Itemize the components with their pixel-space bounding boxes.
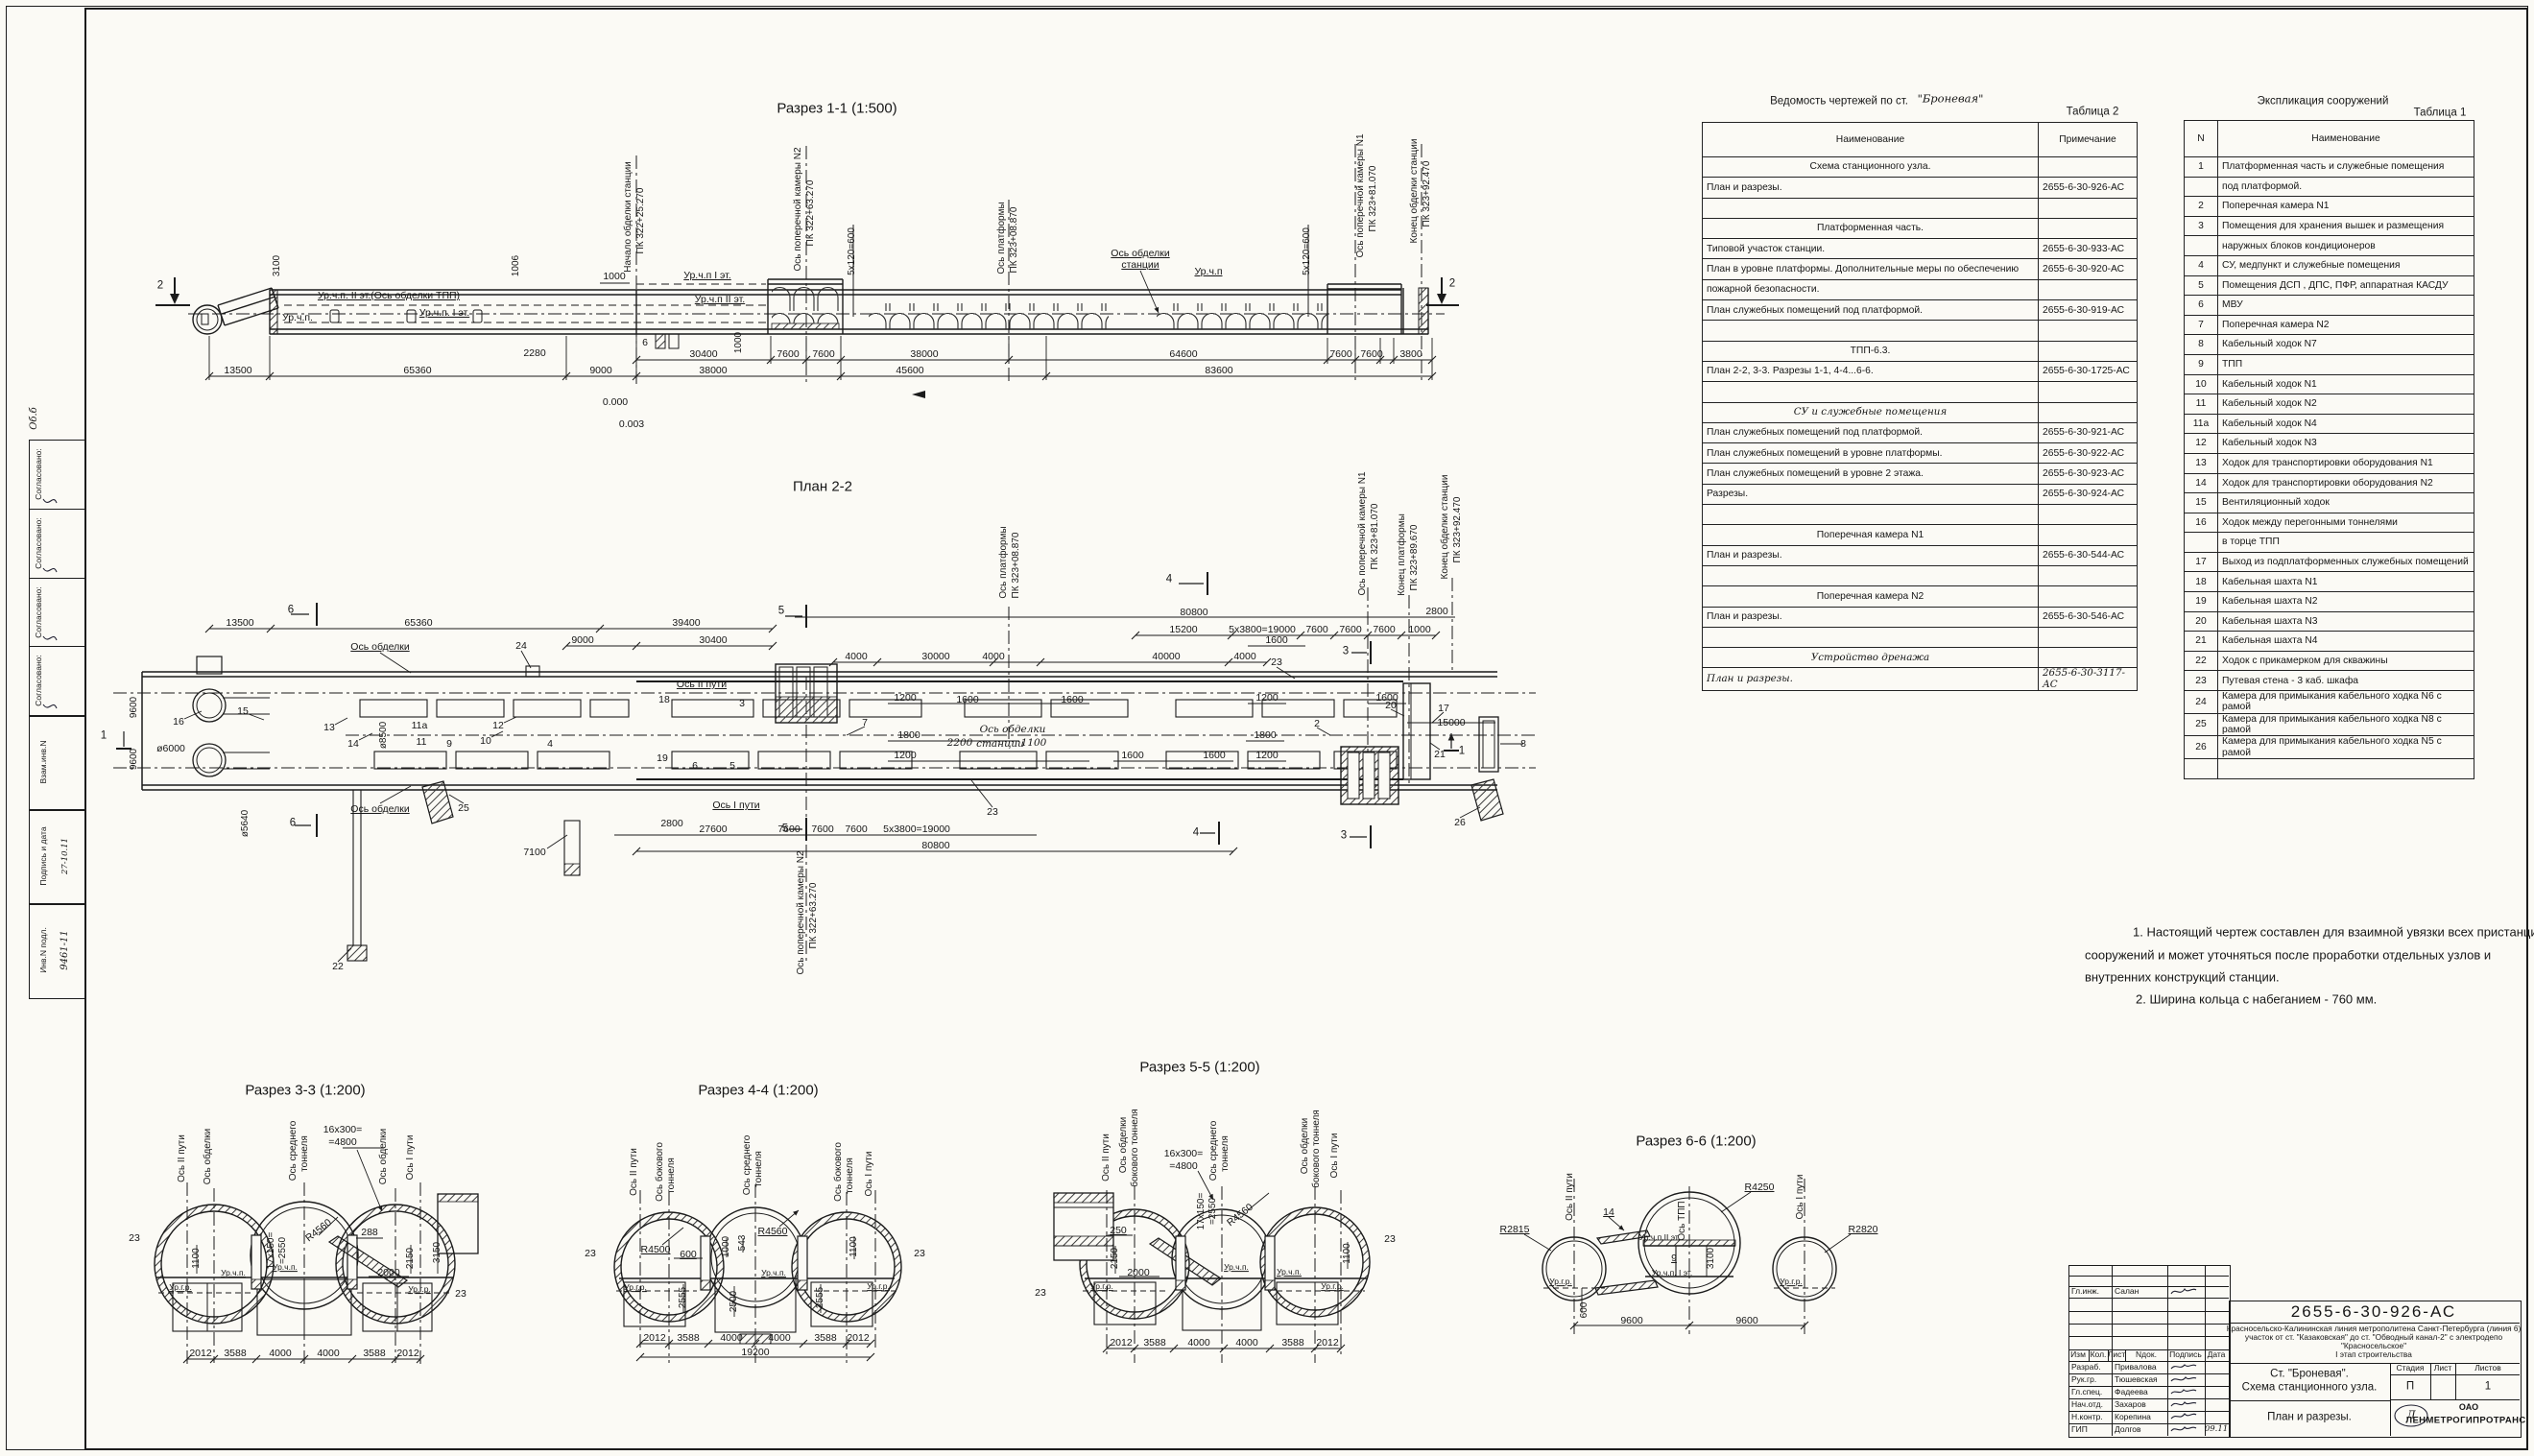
dim-label: 1800 — [1254, 729, 1276, 741]
sheet-name-cell — [1703, 198, 2039, 218]
dim-label: 2500 — [729, 1291, 739, 1312]
table-row — [1703, 382, 2138, 402]
axis-label: тоннеля — [754, 1151, 764, 1187]
callout-number: 8 — [1520, 738, 1526, 750]
header-col: Nдок. — [2136, 1350, 2157, 1360]
dim-label-handwritten: 1100 — [1021, 737, 1047, 749]
sheet-name-cell: ТПП-6.3. — [1703, 341, 2039, 361]
dim-label: 15000 — [1437, 717, 1465, 728]
dim-label: =4800 — [1169, 1160, 1198, 1172]
cut-marker: 6 — [288, 604, 294, 616]
table-row: 11а Кабельный ходок N4 — [2185, 414, 2474, 434]
signer-role: Н.контр. — [2071, 1413, 2103, 1422]
callout-number: 12 — [492, 720, 504, 731]
table-row: пожарной безопасности. — [1703, 279, 2138, 299]
sheet-note-cell — [2039, 382, 2138, 402]
table-title: Экспликация сооружений — [2258, 95, 2389, 107]
structure-number-cell: 20 — [2185, 611, 2218, 632]
column-header: Примечание — [2039, 123, 2138, 157]
dim-label: 4000 — [1235, 1337, 1257, 1349]
signer-role: Разраб. — [2071, 1363, 2101, 1372]
dim-label: 4000 — [317, 1348, 339, 1359]
structure-number-cell: 17 — [2185, 552, 2218, 572]
level-label: Ур.ч.п. — [1277, 1268, 1302, 1277]
structure-name-cell: Кабельный ходок N1 — [2218, 374, 2474, 394]
callout-number: 14 — [347, 738, 359, 750]
section-title: Разрез 4-4 (1:200) — [698, 1082, 818, 1098]
axis-label: Ось обделки — [379, 1129, 389, 1184]
note-line: внутренних конструкций станции. — [2085, 971, 2280, 986]
level-label: Ур.ч.п. — [273, 1263, 298, 1273]
structure-number-cell: 12 — [2185, 434, 2218, 454]
structure-number-cell: 16 — [2185, 513, 2218, 533]
axis-label: Ось I пути — [406, 1135, 416, 1181]
callout-number: 18 — [658, 694, 670, 705]
dim-label: 5х120=600 — [1303, 227, 1312, 275]
callout-number: 23 — [129, 1232, 140, 1244]
structure-number-cell: 7 — [2185, 315, 2218, 335]
structure-name-cell: Кабельная шахта N2 — [2218, 592, 2474, 612]
dim-label: 65360 — [403, 365, 431, 376]
dim-label: 2150 — [406, 1248, 416, 1269]
structure-number-cell: 10 — [2185, 374, 2218, 394]
table-row: План и разрезы. 2655-6-30-546-АС — [1703, 607, 2138, 627]
callout-number: 15 — [237, 705, 249, 717]
object-name: Схема станционного узла. — [2242, 1381, 2378, 1394]
table-row: План 2-2, 3-3. Разрезы 1-1, 4-4...6-6. 2… — [1703, 361, 2138, 381]
signer-name: Корепина — [2115, 1413, 2151, 1422]
table-row: 14 Ходок для транспортировки оборудовани… — [2185, 473, 2474, 493]
dim-label: 7600 — [1373, 624, 1395, 635]
sheet-name-cell: План служебных помещений в уровне платфо… — [1703, 443, 2039, 464]
dim-label: 83600 — [1205, 365, 1232, 376]
signer-role: Гл.спец. — [2071, 1388, 2102, 1397]
sheet-name-cell: пожарной безопасности. — [1703, 279, 2039, 299]
callout-number: 21 — [1434, 749, 1446, 760]
column-header: Наименование — [2218, 121, 2474, 157]
sheets-register-table: Наименование Примечание Схема станционно… — [1702, 122, 2138, 691]
level-label: Ур.г.р. — [408, 1285, 431, 1295]
table-row: План служебных помещений в уровне платфо… — [1703, 443, 2138, 464]
dim-label: 3588 — [814, 1332, 836, 1344]
table-title: Ведомость чертежей по ст. — [1770, 95, 1908, 107]
callout-number: 6 — [642, 337, 648, 348]
dim-label: 7600 — [1360, 348, 1382, 360]
slope-label: 0.003 — [619, 418, 644, 430]
sheet-name-cell — [1703, 382, 2039, 402]
structure-name-cell: Кабельная шахта N3 — [2218, 611, 2474, 632]
dim-label: 7600 — [845, 823, 867, 835]
dim-label: 30000 — [921, 651, 949, 662]
dim-label: 7600 — [777, 348, 799, 360]
structure-number-cell: 26 — [2185, 736, 2218, 759]
dim-label: 1100 — [849, 1236, 859, 1257]
stage-label: Стадия — [2397, 1364, 2425, 1373]
structure-number-cell: 1 — [2185, 157, 2218, 178]
dim-label: 15200 — [1169, 624, 1197, 635]
dim-label: 2800 — [1425, 606, 1447, 617]
axis-label: Ось обделки — [1111, 248, 1169, 259]
dim-label: 4000 — [720, 1332, 742, 1344]
table-row: 2 Поперечная камера N1 — [2185, 197, 2474, 217]
sheet-note-cell — [2039, 648, 2138, 668]
sheets-value: 1 — [2485, 1380, 2491, 1393]
axis-label: Ось поперечной камеры N2 — [797, 850, 806, 974]
sheet-note-cell — [2039, 525, 2138, 545]
table-row: План служебных помещений под платформой.… — [1703, 300, 2138, 321]
structure-name-cell: под платформой. — [2218, 177, 2474, 197]
sheet-note-cell — [2039, 279, 2138, 299]
sheet-note-cell — [2039, 505, 2138, 525]
table-row: План и разрезы. 2655-6-30-926-АС — [1703, 178, 2138, 198]
dim-label: 40000 — [1152, 651, 1180, 662]
header-col: Лист — [2108, 1350, 2125, 1360]
dim-label-handwritten: 2200 — [947, 737, 973, 749]
dim-label: 4000 — [845, 651, 867, 662]
sheets-label: Листов — [2474, 1364, 2501, 1373]
slope-label: 0.000 — [603, 396, 628, 408]
callout-number: 17 — [1438, 703, 1449, 714]
axis-label: Ось платформы — [997, 202, 1007, 274]
callout-number: 10 — [480, 735, 491, 747]
dim-label: 7600 — [1339, 624, 1361, 635]
dim-label: 9000 — [589, 365, 611, 376]
axis-label: Конец обделки станции — [1410, 139, 1420, 244]
table-number: Таблица 2 — [2067, 106, 2119, 118]
structure-number-cell: 24 — [2185, 691, 2218, 714]
dim-label: 288 — [361, 1227, 378, 1238]
dim-label: 2012 — [396, 1348, 418, 1359]
signer-role: Нач.отд. — [2071, 1400, 2103, 1410]
dim-label: 600 — [680, 1249, 697, 1260]
sheet-note-cell — [2039, 586, 2138, 607]
structure-number-cell: 11 — [2185, 394, 2218, 415]
structure-number-cell — [2185, 758, 2218, 778]
table-row — [1703, 627, 2138, 647]
table-row: 21 Кабельная шахта N4 — [2185, 632, 2474, 652]
callout-number: 23 — [1384, 1233, 1396, 1245]
table-row — [1703, 505, 2138, 525]
axis-label: Ось обделки — [1119, 1117, 1129, 1173]
dim-label: 45600 — [896, 365, 923, 376]
table-row: 13 Ходок для транспортировки оборудовани… — [2185, 453, 2474, 473]
axis-label: Ось среднего — [1209, 1121, 1219, 1182]
structure-name-cell: Поперечная камера N2 — [2218, 315, 2474, 335]
signer-name: Тюшевская — [2115, 1375, 2158, 1385]
axis-label: Ось I пути — [712, 800, 759, 811]
axis-label: бокового тоннеля — [1131, 1109, 1140, 1186]
table-row: План в уровне платформы. Дополнительные … — [1703, 259, 2138, 279]
radius-label: R4500 — [641, 1244, 671, 1255]
sheet-note-cell — [2039, 218, 2138, 238]
sheet-note-cell — [2039, 627, 2138, 647]
structure-name-cell: Камера для примыкания кабельного ходка N… — [2218, 691, 2474, 714]
sheet-note-cell: 2655-6-30-1725-АС — [2039, 361, 2138, 381]
dim-label: 80800 — [921, 840, 949, 851]
callout-number: 23 — [455, 1288, 466, 1300]
cut-marker: 2 — [1449, 277, 1455, 290]
dim-label: 1200 — [894, 692, 916, 704]
level-label: Ур.г.р. — [1090, 1282, 1113, 1292]
dim-label: 600 — [1580, 1302, 1590, 1319]
dim-label: 1100 — [1343, 1243, 1352, 1264]
sheet-name-cell: План и разрезы. — [1703, 668, 2039, 691]
dim-label: 1000 — [722, 1236, 731, 1257]
structure-number-cell: 5 — [2185, 275, 2218, 296]
table-row: 18 Кабельная шахта N1 — [2185, 572, 2474, 592]
dim-label: 30400 — [689, 348, 717, 360]
callout-number: 19 — [657, 752, 668, 764]
table-row: 16 Ходок между перегонными тоннелями — [2185, 513, 2474, 533]
table-row: Разрезы. 2655-6-30-924-АС — [1703, 484, 2138, 504]
dim-label: 30400 — [699, 634, 727, 646]
signer-name: Долгов — [2115, 1425, 2141, 1435]
axis-label: Ось поперечной камеры N1 — [1358, 471, 1368, 595]
level-label: Ур.г.р. — [1549, 1277, 1572, 1287]
axis-label-handwritten: Ось обделки — [980, 724, 1046, 735]
sheet-note-cell: 2655-6-30-546-АС — [2039, 607, 2138, 627]
sheet-note-cell: 2655-6-30-920-АС — [2039, 259, 2138, 279]
cut-marker: 5 — [778, 605, 784, 617]
level-label: Ур.г.р. — [169, 1283, 192, 1293]
table-row: 22 Ходок с прикамерком для скважины — [2185, 651, 2474, 671]
radius-label: R4250 — [1745, 1182, 1775, 1193]
table-row: 20 Кабельная шахта N3 — [2185, 611, 2474, 632]
signer-name: Салан — [2115, 1287, 2139, 1297]
section-title: Разрез 5-5 (1:200) — [1139, 1059, 1259, 1075]
table-row: наружных блоков кондиционеров — [2185, 236, 2474, 256]
level-label: Ур.г.р. — [867, 1282, 890, 1292]
axis-label: тоннеля — [846, 1158, 855, 1194]
dim-label: 1100 — [192, 1248, 202, 1269]
dim-label: 39400 — [672, 617, 700, 629]
dim-label: 9600 — [1735, 1315, 1757, 1326]
axis-label: Конец платформы — [1398, 513, 1407, 596]
level-label: Ур.ч.п. — [221, 1269, 246, 1278]
section-title: Разрез 6-6 (1:200) — [1636, 1133, 1756, 1149]
callout-number: 7 — [862, 717, 868, 728]
structure-name-cell: Камера для примыкания кабельного ходка N… — [2218, 713, 2474, 736]
level-label: Ур.ч.п. I эт. — [1652, 1269, 1692, 1278]
dim-label: 1800 — [897, 729, 920, 741]
dim-label: 3588 — [677, 1332, 699, 1344]
level-label: Ур.ч.п. I эт. — [419, 307, 469, 319]
table-row: 17 Выход из подплатформенных служебных п… — [2185, 552, 2474, 572]
sheet-note-cell: 2655-6-30-933-АС — [2039, 239, 2138, 259]
sheet-name-cell: План и разрезы. — [1703, 607, 2039, 627]
table-row: Типовой участок станции. 2655-6-30-933-А… — [1703, 239, 2138, 259]
drawing-sheet: Согласовано: Согласовано: Согласовано: С… — [0, 0, 2534, 1456]
table-row: 26 Камера для примыкания кабельного ходк… — [2185, 736, 2474, 759]
sheet-note-cell — [2039, 157, 2138, 178]
cut-marker: 4 — [1193, 826, 1199, 839]
cut-marker: 3 — [1341, 829, 1347, 842]
dim-label: 38000 — [699, 365, 727, 376]
cut-marker: 1 — [1459, 745, 1465, 757]
signer-name: Привалова — [2115, 1363, 2157, 1372]
structure-number-cell: 8 — [2185, 335, 2218, 355]
level-label: Ур.ч.п.II эт. — [1639, 1233, 1680, 1243]
dim-label: =2550 — [278, 1237, 288, 1264]
axis-label: Ось II пути — [178, 1134, 187, 1182]
axis-label-handwritten: станции — [976, 738, 1024, 750]
table-row: 19 Кабельная шахта N2 — [2185, 592, 2474, 612]
structure-number-cell: 13 — [2185, 453, 2218, 473]
sheet-name-cell: План 2-2, 3-3. Разрезы 1-1, 4-4...6-6. — [1703, 361, 2039, 381]
dim-label: 3100 — [1707, 1248, 1716, 1269]
document-number: 2655-6-30-926-АС — [2291, 1302, 2456, 1322]
structure-name-cell: Вентиляционный ходок — [2218, 493, 2474, 513]
axis-label: ПК 323+08.870 — [1012, 533, 1021, 599]
table-row: 11 Кабельный ходок N2 — [2185, 394, 2474, 415]
dim-label: 3150 — [433, 1242, 442, 1263]
axis-label: Ось I пути — [865, 1152, 874, 1197]
axis-label: Ось среднего — [743, 1135, 753, 1196]
axis-label: станции — [1121, 259, 1159, 271]
table-row: в торце ТПП — [2185, 533, 2474, 553]
dim-label: 543 — [738, 1235, 748, 1252]
structure-name-cell: Кабельная шахта N4 — [2218, 632, 2474, 652]
table-row: План служебных помещений под платформой.… — [1703, 422, 2138, 442]
structure-number-cell — [2185, 236, 2218, 256]
table-row: 7 Поперечная камера N2 — [2185, 315, 2474, 335]
signer-role: Гл.инж. — [2071, 1287, 2099, 1297]
table-row: 23 Путевая стена - 3 каб. шкафа — [2185, 671, 2474, 691]
sheet-name-cell: СУ и служебные помещения — [1703, 402, 2039, 422]
project-line: I этап строительства — [2335, 1350, 2412, 1360]
structure-name-cell: Кабельный ходок N2 — [2218, 394, 2474, 415]
dim-label: 2012 — [847, 1332, 869, 1344]
dim-label: 2280 — [523, 347, 545, 359]
dim-label: 4000 — [1187, 1337, 1209, 1349]
radius-label: R2820 — [1849, 1224, 1878, 1235]
structure-number-cell: 3 — [2185, 216, 2218, 236]
structure-name-cell: Ходок для транспортировки оборудования N… — [2218, 453, 2474, 473]
sheet-note-cell: 2655-6-30-926-АС — [2039, 178, 2138, 198]
structure-name-cell: Кабельная шахта N1 — [2218, 572, 2474, 592]
table-row: 9 ТПП — [2185, 354, 2474, 374]
level-label: Ур.ч.п. — [1224, 1263, 1249, 1273]
structure-number-cell: 25 — [2185, 713, 2218, 736]
callout-number: 23 — [585, 1248, 596, 1259]
sheet-name-cell — [1703, 565, 2039, 585]
axis-label: Ось I пути — [1796, 1175, 1805, 1220]
dim-label: 1600 — [956, 694, 978, 705]
sheet-name-cell: План и разрезы. — [1703, 545, 2039, 565]
cut-marker: 3 — [1343, 645, 1349, 657]
axis-label: Ось II пути — [630, 1148, 639, 1196]
structure-number-cell: 9 — [2185, 354, 2218, 374]
axis-label: Ось II пути — [677, 679, 727, 690]
signer-role: Рук.гр. — [2071, 1375, 2096, 1385]
dim-label: 3588 — [1281, 1337, 1303, 1349]
callout-number: 13 — [323, 722, 335, 733]
dim-label: 4000 — [768, 1332, 790, 1344]
signer-name: Фадеева — [2115, 1388, 2148, 1397]
dim-label: 3588 — [363, 1348, 385, 1359]
sheet-name-cell: Разрезы. — [1703, 484, 2039, 504]
dim-label: 1600 — [1061, 694, 1083, 705]
structure-name-cell: Камера для примыкания кабельного ходка N… — [2218, 736, 2474, 759]
table-row — [1703, 198, 2138, 218]
axis-label: ПК 323+89.670 — [1410, 525, 1420, 591]
cut-marker: 1 — [101, 729, 107, 742]
sheet-label: Лист — [2434, 1364, 2451, 1373]
dim-label: 13500 — [224, 365, 251, 376]
dim-label: 1000 — [734, 332, 744, 353]
dim-label: 1600 — [1203, 750, 1225, 761]
structure-name-cell: Ходок между перегонными тоннелями — [2218, 513, 2474, 533]
dim-label: 2000 — [377, 1267, 399, 1278]
axis-label: Ось поперечной камеры N2 — [794, 147, 803, 271]
structure-name-cell — [2218, 758, 2474, 778]
structure-number-cell: 22 — [2185, 651, 2218, 671]
callout-number: 11 — [417, 736, 427, 748]
axis-label: Ось I пути — [1330, 1134, 1340, 1179]
table-row: План и разрезы. 2655-6-30-544-АС — [1703, 545, 2138, 565]
sheet-note-cell: 2655-6-30-544-АС — [2039, 545, 2138, 565]
callout-number: 5 — [729, 760, 735, 772]
sheet-note-cell: 2655-6-30-922-АС — [2039, 443, 2138, 464]
dim-label: 1000 — [1408, 624, 1430, 635]
sheet-note-cell: 2655-6-30-919-АС — [2039, 300, 2138, 321]
dim-label: 7100 — [523, 847, 545, 858]
dim-label: 7600 — [1305, 624, 1327, 635]
structure-number-cell: 23 — [2185, 671, 2218, 691]
sheet-name-cell: План и разрезы. — [1703, 178, 2039, 198]
structure-name-cell: Путевая стена - 3 каб. шкафа — [2218, 671, 2474, 691]
callout-number: 23 — [987, 806, 998, 818]
sheet-name-cell — [1703, 321, 2039, 341]
dim-label: 64600 — [1169, 348, 1197, 360]
callout-number: 9 — [446, 738, 452, 750]
axis-label: Начало обделки станции — [624, 161, 633, 273]
axis-label: Ось среднего — [289, 1121, 299, 1182]
sheet-name-cell: Поперечная камера N2 — [1703, 586, 2039, 607]
level-label: Ур.ч.п. — [282, 312, 313, 323]
dim-label: 4000 — [982, 651, 1004, 662]
callout-number: 4 — [547, 738, 553, 750]
sheet-note-cell: 2655-6-30-3117-АС — [2039, 668, 2138, 691]
dim-label: 1200 — [1255, 750, 1278, 761]
axis-label: ПК 322+25.270 — [636, 188, 646, 254]
dim-label: 4000 — [1233, 651, 1255, 662]
table-row: 8 Кабельный ходок N7 — [2185, 335, 2474, 355]
dim-label: 27600 — [699, 823, 727, 835]
structure-number-cell: 4 — [2185, 255, 2218, 275]
structure-number-cell: 21 — [2185, 632, 2218, 652]
structure-number-cell: 6 — [2185, 296, 2218, 316]
table-row: под платформой. — [2185, 177, 2474, 197]
table-row: 10 Кабельный ходок N1 — [2185, 374, 2474, 394]
table-row — [2185, 758, 2474, 778]
table-row — [1703, 565, 2138, 585]
dim-label: 13500 — [226, 617, 253, 629]
axis-label: ПК 322+63.270 — [809, 883, 819, 949]
dim-label: 2012 — [1110, 1337, 1132, 1349]
sheet-name-cell: Поперечная камера N1 — [1703, 525, 2039, 545]
callout-number: 2 — [1314, 718, 1320, 729]
dim-label: 4000 — [269, 1348, 291, 1359]
header-col: Подпись — [2169, 1350, 2202, 1360]
dim-label: ø6000 — [156, 743, 185, 754]
signature-date: 09.11 — [2205, 1425, 2228, 1435]
dim-label: 2150 — [1111, 1248, 1120, 1269]
note-line: 2. Ширина кольца с набеганием - 760 мм. — [2136, 993, 2377, 1008]
sheet-note-cell: 2655-6-30-924-АС — [2039, 484, 2138, 504]
dim-label: 17х150= — [1197, 1193, 1207, 1230]
structure-name-cell: Платформенная часть и служебные помещени… — [2218, 157, 2474, 178]
